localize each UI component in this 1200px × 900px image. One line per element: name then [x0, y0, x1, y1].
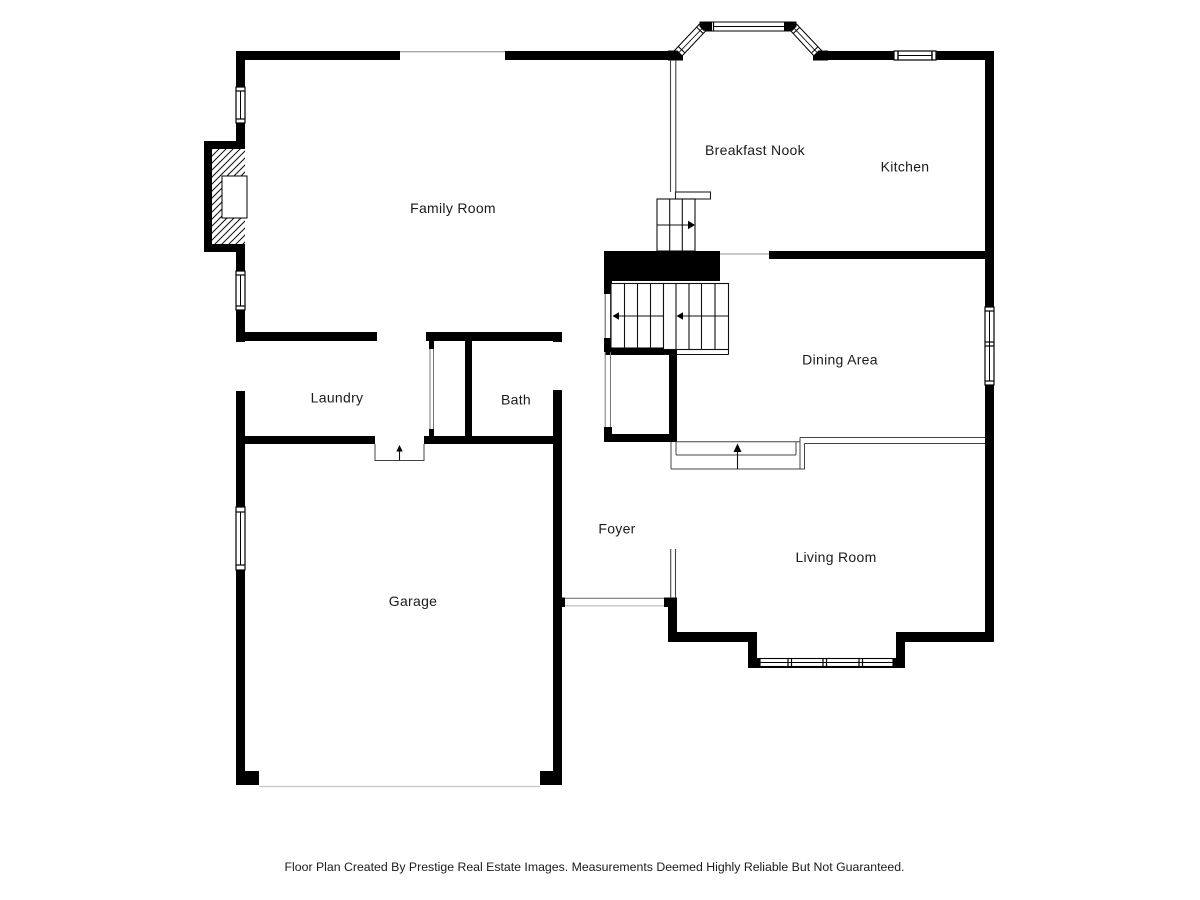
svg-text:Family Room: Family Room	[410, 200, 496, 216]
svg-text:Bath: Bath	[501, 392, 531, 408]
svg-text:Floor Plan Created By Prestige: Floor Plan Created By Prestige Real Esta…	[285, 860, 905, 874]
svg-text:Foyer: Foyer	[598, 521, 635, 537]
svg-text:Living Room: Living Room	[795, 549, 876, 565]
svg-text:Dining Area: Dining Area	[802, 352, 878, 368]
svg-text:Laundry: Laundry	[311, 390, 364, 406]
svg-text:Breakfast Nook: Breakfast Nook	[705, 142, 806, 158]
svg-text:Kitchen: Kitchen	[881, 159, 930, 175]
svg-text:Garage: Garage	[389, 593, 438, 609]
